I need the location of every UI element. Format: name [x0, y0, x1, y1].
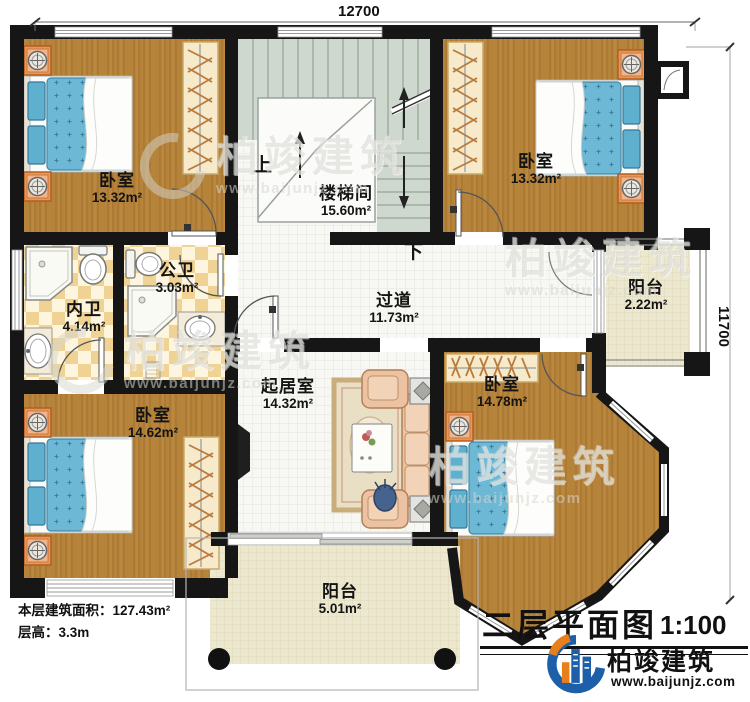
floor-plan-page: 卧室 13.32m² 楼梯间 15.60m² 卧室 13.32m² 内卫 4.1… — [0, 0, 750, 702]
nightstand — [24, 536, 51, 565]
nightstand — [446, 412, 473, 441]
floor-area-text: 本层建筑面积：127.43m² — [18, 599, 170, 619]
window-bath-west — [12, 250, 22, 330]
nightstand — [24, 172, 51, 201]
bed-se — [446, 440, 554, 536]
dimension-width: 12700 — [338, 3, 380, 20]
bed-nw — [24, 76, 132, 172]
room-label-bedroom-nw: 卧室 13.32m² — [92, 172, 142, 206]
sink-public — [178, 312, 225, 346]
room-label-balcony-south: 阳台 5.01m² — [319, 583, 362, 617]
logo-company-name: 柏竣建筑 — [607, 642, 715, 678]
stair-down-label: 下 — [404, 237, 423, 264]
window-top-ne — [492, 27, 640, 37]
floor-height-text: 层高：3.3m — [18, 621, 89, 641]
room-label-bath-public: 公卫 3.03m² — [156, 262, 199, 296]
room-label-stairwell: 楼梯间 15.60m² — [319, 185, 373, 219]
floor-plan-drawing — [0, 0, 750, 702]
bed-sw — [24, 437, 132, 533]
room-label-living-room: 起居室 14.32m² — [261, 378, 315, 412]
logo-website: www.baijunjz.com — [611, 674, 736, 689]
company-logo: 柏竣建筑 www.baijunjz.com — [545, 632, 750, 700]
window-top-stair — [278, 27, 382, 37]
toilet-private — [79, 246, 107, 284]
nightstand — [24, 46, 51, 75]
nightstand — [618, 174, 645, 203]
tv — [238, 424, 250, 480]
dimension-height: 11700 — [715, 306, 732, 347]
room-label-bedroom-sw: 卧室 14.62m² — [128, 407, 178, 441]
flue-box — [658, 64, 686, 96]
coffee-table — [352, 424, 392, 472]
wardrobe-nw — [183, 42, 218, 174]
nightstand — [618, 50, 645, 79]
sink-private — [24, 328, 52, 374]
logo-swirl-icon — [545, 632, 607, 700]
window-hall-east — [594, 250, 604, 333]
room-label-balcony-east: 阳台 2.22m² — [625, 279, 668, 313]
wardrobe-ne — [448, 42, 483, 174]
room-label-bedroom-ne: 卧室 13.32m² — [511, 153, 561, 187]
wardrobe-sw — [184, 437, 219, 569]
nightstand — [24, 408, 51, 437]
room-label-hallway: 过道 11.73m² — [369, 292, 419, 326]
window-sw-south — [47, 580, 173, 596]
armchair-top — [362, 370, 408, 408]
room-label-bedroom-se: 卧室 14.78m² — [477, 376, 527, 410]
window-top-nw — [55, 27, 172, 37]
sliding-door-balcony-south — [228, 533, 412, 545]
room-label-bath-private: 内卫 4.14m² — [63, 301, 106, 335]
stair-up-label: 上 — [253, 150, 272, 177]
